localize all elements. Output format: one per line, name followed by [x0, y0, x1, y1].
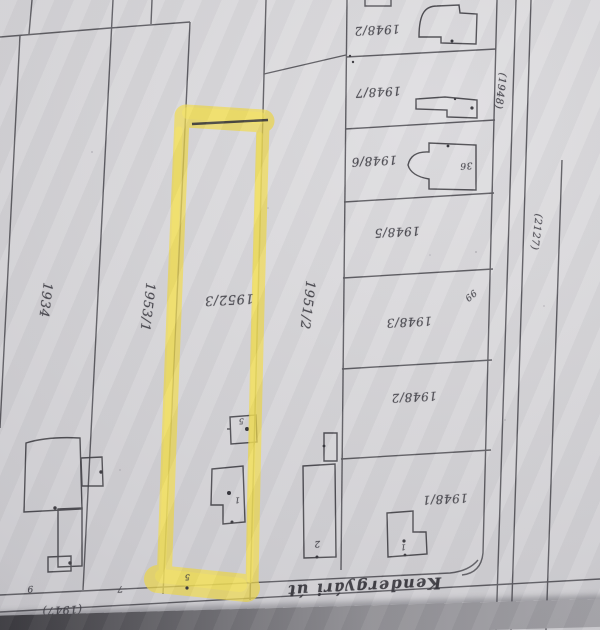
house-number-9: 9 — [27, 583, 34, 593]
parcel-label-1952-3-highlighted: 1952/3 — [204, 290, 254, 308]
cadastral-map-photo: 1934 1953/1 1952/3 1951/2 1948/2 1948/7 … — [0, 0, 600, 630]
paper-speckles — [91, 151, 545, 471]
building-number-36: 36 — [459, 160, 472, 171]
house-number-5-highlighted: 5 — [184, 572, 190, 581]
parcel-label-1948-7: 1948/7 — [355, 84, 401, 100]
building-number-2: 2 — [314, 538, 321, 548]
parcel-label-1948-5: 1948/5 — [374, 224, 420, 240]
building-number-5: 5 — [238, 416, 244, 425]
parcel-label-1948-1: 1948/1 — [422, 491, 468, 507]
parcel-label-1948-6: 1948/6 — [351, 153, 397, 169]
building-number-1: 1 — [234, 495, 240, 504]
parcel-label-1948-2-lower: 1948/2 — [391, 389, 437, 405]
parcel-label-1948-2-top: 1948/2 — [354, 22, 400, 38]
parcel-label-1948-3: 1948/3 — [386, 314, 432, 330]
building-number-1-1948-1: 1 — [400, 542, 406, 551]
house-number-7: 7 — [117, 583, 124, 593]
survey-dot-in-highlight — [185, 586, 188, 589]
